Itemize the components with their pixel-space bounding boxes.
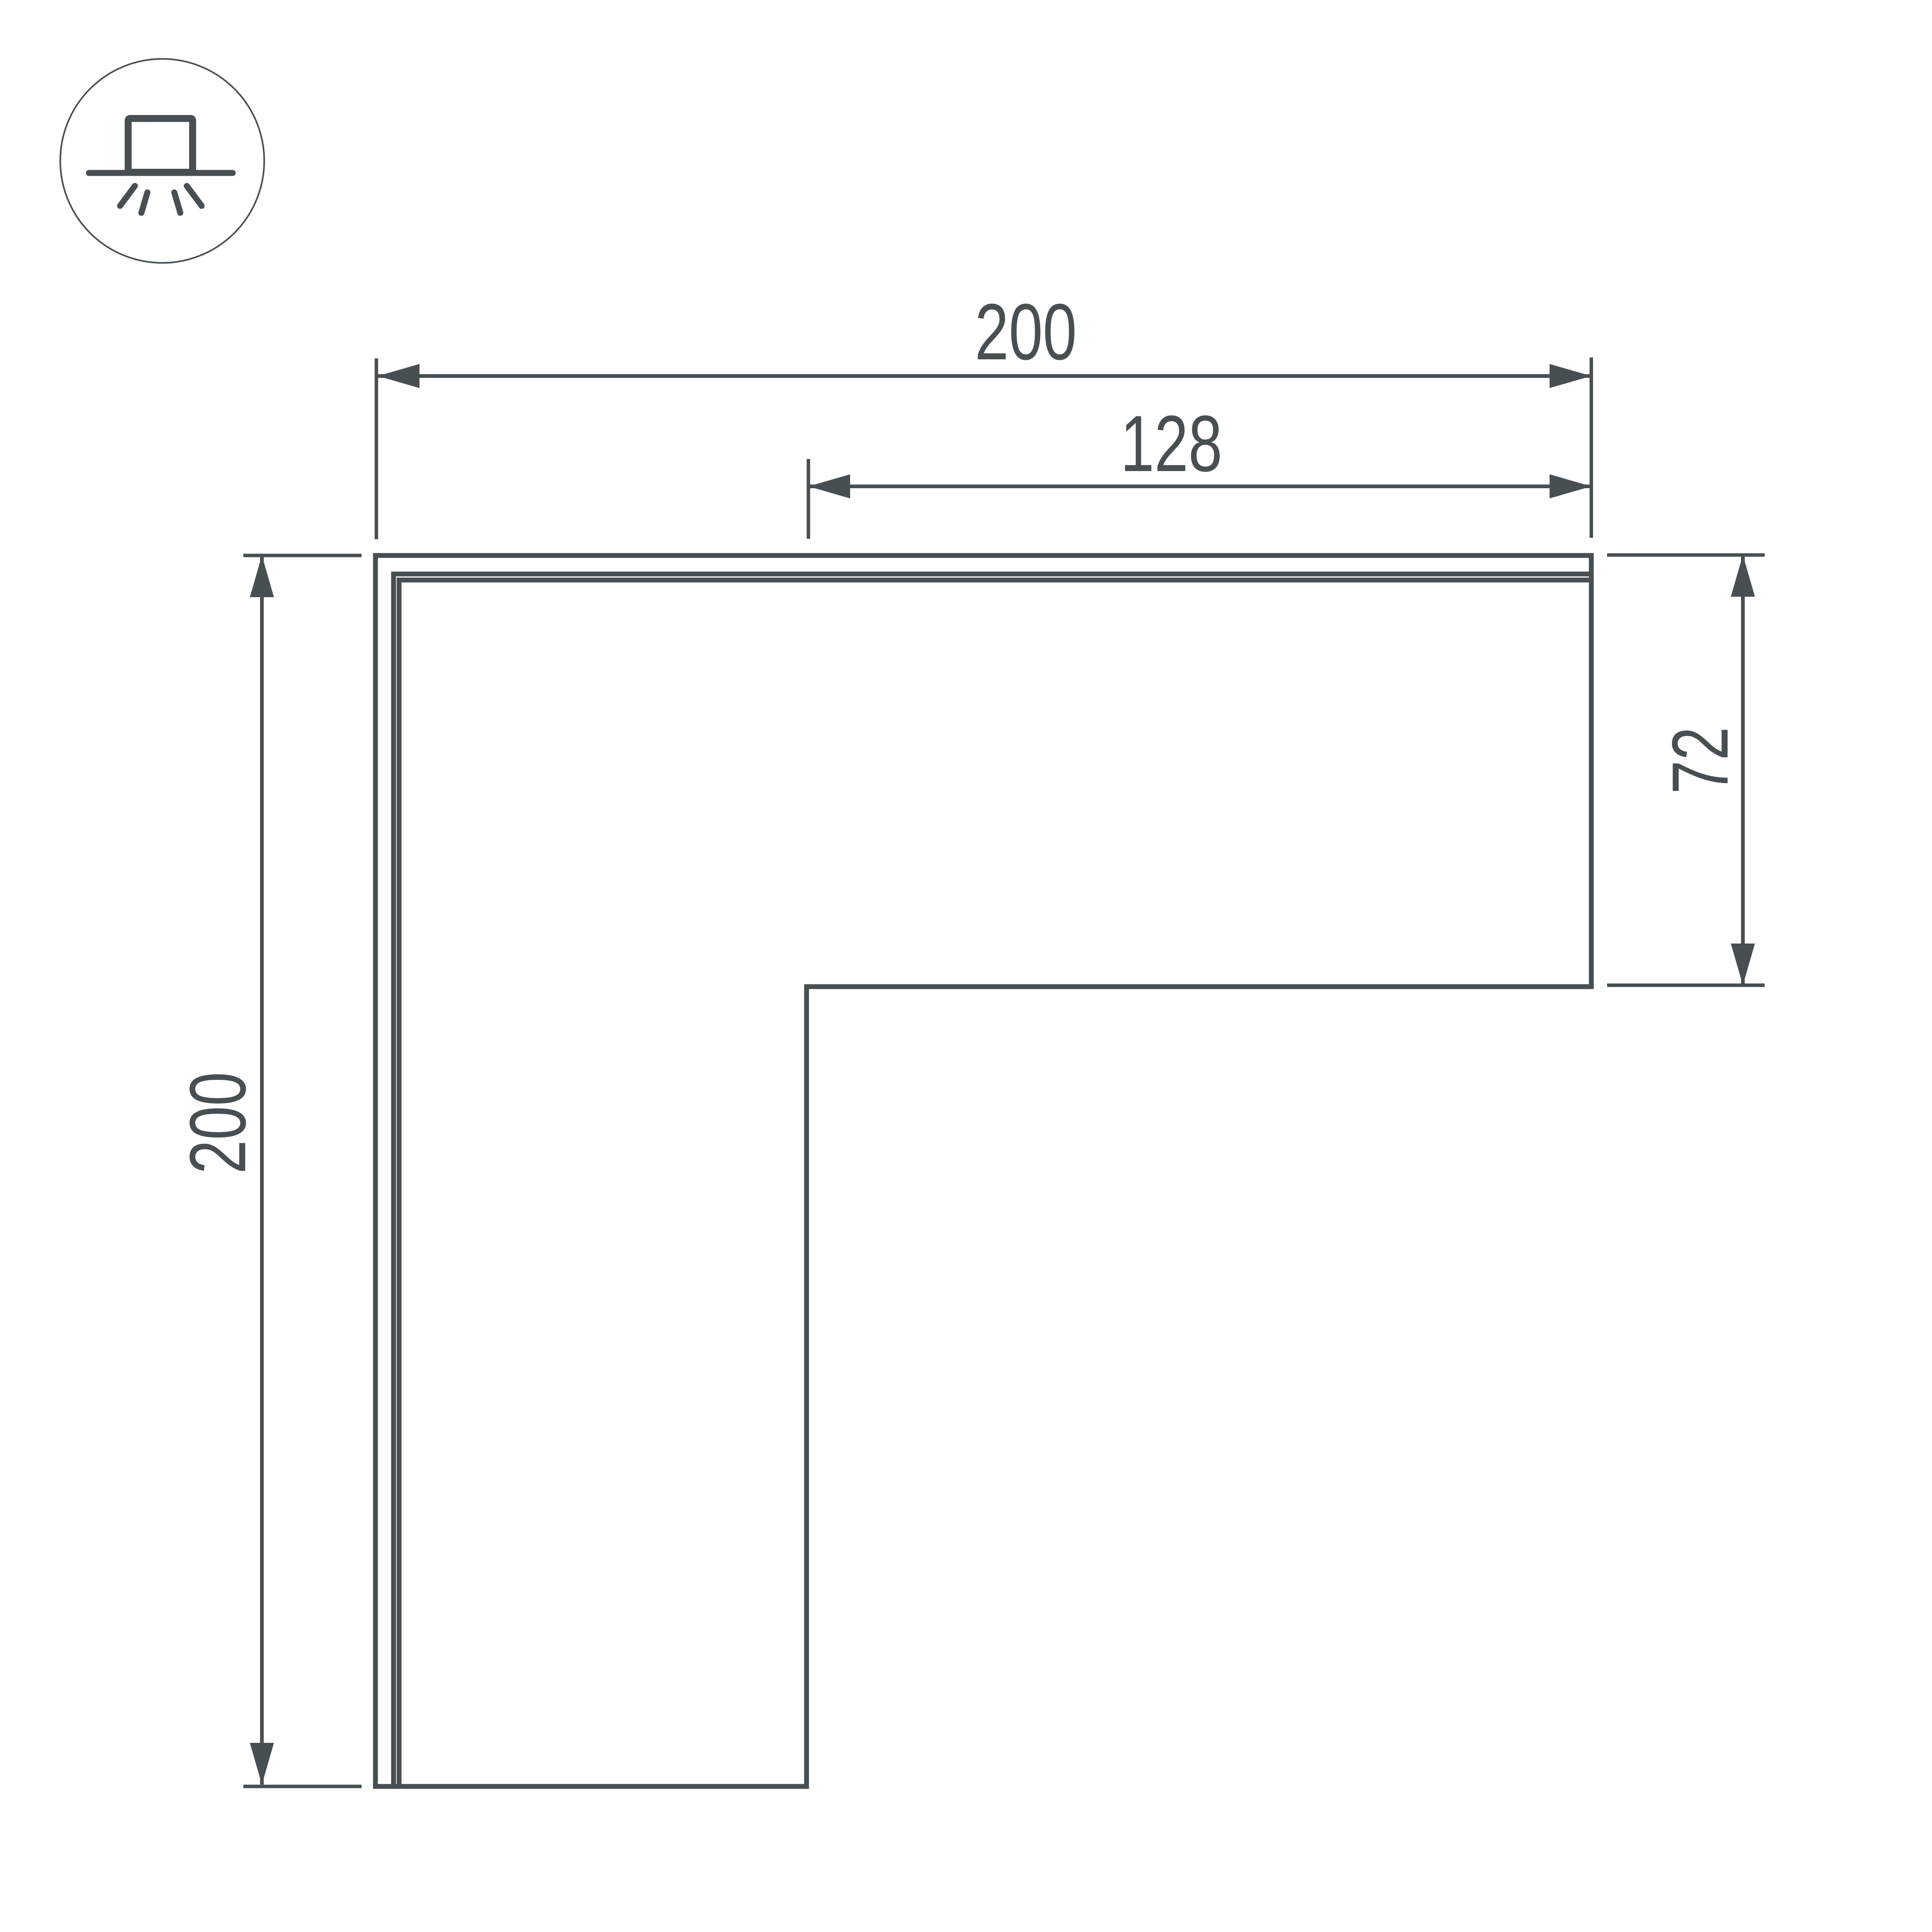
icon-circle	[60, 59, 264, 263]
dimension-label-arm-height: 72	[1656, 727, 1745, 794]
arrowhead-left	[808, 474, 850, 498]
fixture-box-icon	[128, 119, 193, 172]
drawing-page: 200 128 200 72	[0, 0, 1932, 1932]
dimension-label-top-width: 200	[975, 287, 1077, 376]
arrowhead-up	[1731, 555, 1755, 597]
arrowhead-right	[1550, 364, 1591, 388]
light-rays-icon	[120, 186, 202, 213]
dimension-label-inner-width: 128	[1120, 399, 1222, 488]
arrowhead-right	[1550, 474, 1591, 498]
technical-drawing-canvas: 200 128 200 72	[0, 0, 1932, 1932]
part-seam-line-inner	[399, 580, 1589, 1784]
arrowhead-down	[1731, 944, 1755, 985]
dimension-label-left-height: 200	[173, 1072, 262, 1174]
dimension-left-height: 200	[173, 555, 362, 1786]
surface-mount-luminaire-icon	[60, 59, 264, 263]
arrowhead-left	[378, 364, 419, 388]
part-view	[375, 555, 1591, 1786]
dimension-top-width: 200	[376, 287, 1591, 539]
dimension-arm-height: 72	[1607, 555, 1765, 985]
dimension-inner-width: 128	[808, 399, 1591, 539]
arrowhead-down	[250, 1743, 274, 1785]
arrowhead-up	[250, 555, 274, 597]
part-seam-line-outer	[394, 574, 1589, 1784]
part-outline	[375, 555, 1591, 1786]
